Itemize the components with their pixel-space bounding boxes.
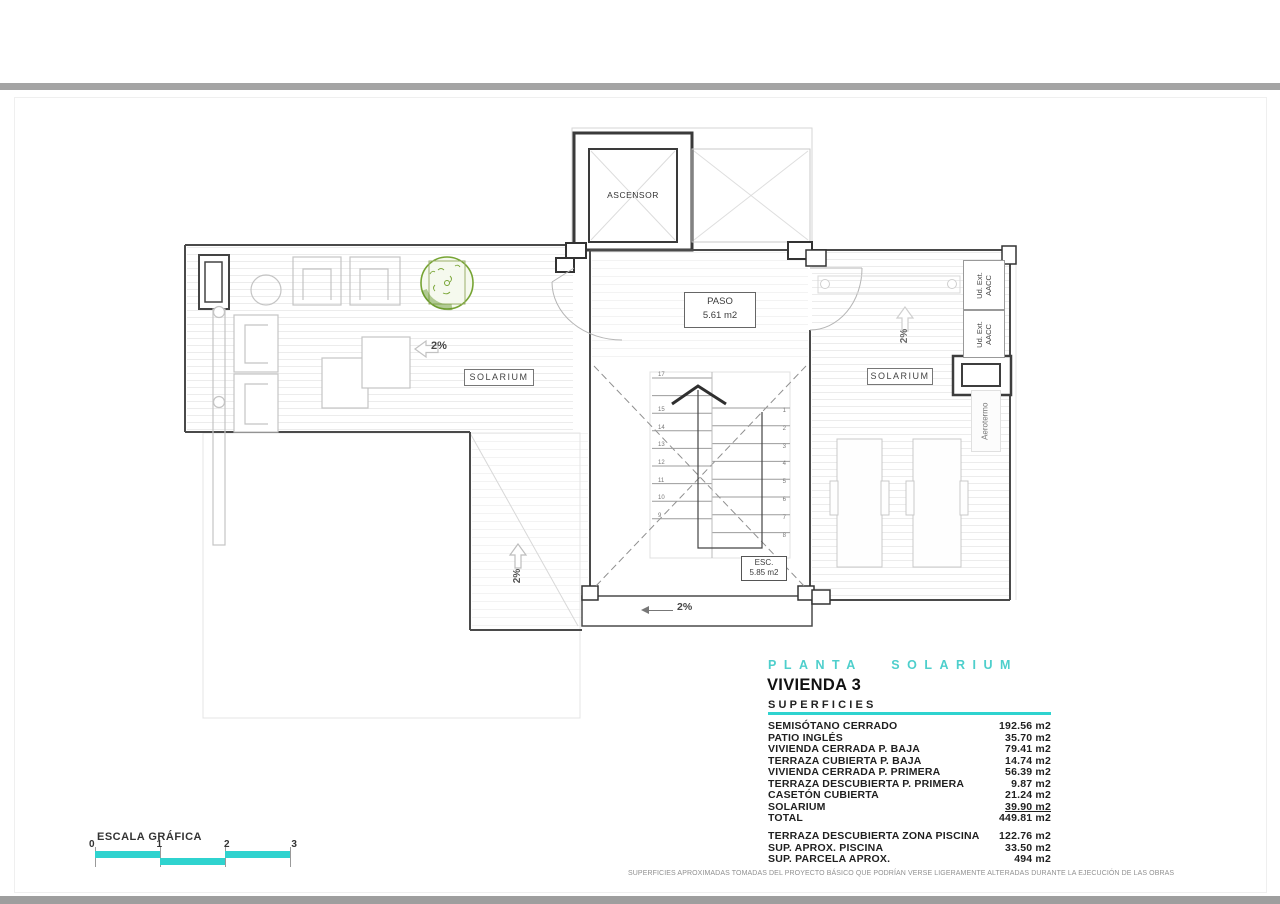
ud-ext-aacc-box-1: Ud. Ext. AACC <box>963 260 1005 310</box>
walls <box>185 245 1010 630</box>
aerotermo-box: Aerotermo <box>971 390 1001 452</box>
scale-segment <box>160 858 225 865</box>
surface-value: 79.41 m2 <box>1005 744 1051 756</box>
slope-left-label: 2% <box>431 340 447 352</box>
accent-divider <box>768 712 1051 715</box>
solarium-left-label: SOLARIUM <box>464 369 534 386</box>
ud-ext-aacc-text: Ud. Ext. AACC <box>976 321 993 348</box>
scale-segment <box>225 851 290 858</box>
surface-value: 449.81 m2 <box>999 813 1051 825</box>
paso-label: PASO 5.61 m2 <box>684 292 756 328</box>
dwelling-title: VIVIENDA 3 <box>767 676 861 695</box>
surface-label: TOTAL <box>768 813 803 825</box>
aerotermo-label: Aerotermo <box>982 402 991 439</box>
skylight <box>692 149 810 242</box>
stair-number: 15 <box>658 407 674 425</box>
plan-title: PLANTA SOLARIUM <box>768 658 1018 672</box>
floor-plan-drawing <box>0 0 1280 904</box>
stair-numbers-left: 171514131211109 <box>658 372 674 530</box>
stair-number: 3 <box>772 444 786 462</box>
stair-number: 14 <box>658 425 674 443</box>
surface-value: 494 m2 <box>1014 854 1051 866</box>
surface-label: VIVIENDA CERRADA P. BAJA <box>768 744 920 756</box>
surface-row: SEMISÓTANO CERRADO 192.56 m2 <box>768 721 1051 733</box>
elevator-label: ASCENSOR <box>589 190 677 200</box>
ud-ext-aacc-text: Ud. Ext. AACC <box>976 272 993 299</box>
scale-tick-number: 3 <box>291 839 297 850</box>
stair-number: 13 <box>658 442 674 460</box>
scale-tick-number: 0 <box>89 839 95 850</box>
scale-segment <box>95 851 160 858</box>
ud-ext-aacc-box-2: Ud. Ext. AACC <box>963 310 1005 358</box>
stair-number: 1 <box>772 408 786 426</box>
stair-number: 11 <box>658 478 674 496</box>
slope-bottom-arrow-line <box>649 610 673 612</box>
stair-number: 2 <box>772 426 786 444</box>
plan-sheet: ASCENSOR PASO 5.61 m2 ESC. 5.85 m2 SOLAR… <box>0 0 1280 904</box>
stair-numbers-right: 12345678 <box>772 408 786 550</box>
surface-label: TERRAZA DESCUBIERTA ZONA PISCINA <box>768 831 980 843</box>
surface-row: TOTAL 449.81 m2 <box>768 813 1051 825</box>
surfaces-table: SEMISÓTANO CERRADO 192.56 m2 PATIO INGLÉ… <box>768 721 1051 825</box>
esc-title: ESC. <box>742 558 786 568</box>
stair-number: 17 <box>658 372 674 390</box>
stair-number: 8 <box>772 533 786 551</box>
stair-number: 4 <box>772 461 786 479</box>
left-solarium-furniture <box>199 255 410 545</box>
stair-number: 10 <box>658 495 674 513</box>
stair-number: 12 <box>658 460 674 478</box>
esc-label: ESC. 5.85 m2 <box>741 556 787 581</box>
disclaimer-text: SUPERFICIES APROXIMADAS TOMADAS DEL PROY… <box>628 870 1174 877</box>
surface-row: TERRAZA DESCUBIERTA ZONA PISCINA 122.76 … <box>768 831 1051 843</box>
scale-numbers: 0123 <box>89 839 297 850</box>
surface-row: VIVIENDA CERRADA P. BAJA 79.41 m2 <box>768 744 1051 756</box>
surface-row: VIVIENDA CERRADA P. PRIMERA 56.39 m2 <box>768 767 1051 779</box>
esc-area: 5.85 m2 <box>742 568 786 578</box>
paso-title: PASO <box>685 295 755 309</box>
solarium-right-label: SOLARIUM <box>867 368 933 385</box>
surface-label: VIVIENDA CERRADA P. PRIMERA <box>768 767 940 779</box>
surface-value: 122.76 m2 <box>999 831 1051 843</box>
stair-number: 6 <box>772 497 786 515</box>
paso-area: 5.61 m2 <box>685 309 755 323</box>
surface-row: SUP. PARCELA APROX. 494 m2 <box>768 854 1051 866</box>
stair-number <box>658 390 674 408</box>
slope-bottom-arrow-icon <box>641 606 649 614</box>
stair-number: 5 <box>772 479 786 497</box>
surface-value: 56.39 m2 <box>1005 767 1051 779</box>
stair-number: 9 <box>658 513 674 531</box>
surface-label: SEMISÓTANO CERRADO <box>768 721 897 733</box>
scale-tick-mark <box>290 847 291 867</box>
surfaces-table-extra: TERRAZA DESCUBIERTA ZONA PISCINA 122.76 … <box>768 831 1051 866</box>
tree-icon <box>421 257 473 309</box>
stair-number: 7 <box>772 515 786 533</box>
slope-vert-right-label: 2% <box>899 321 911 351</box>
surface-value: 192.56 m2 <box>999 721 1051 733</box>
sun-loungers <box>830 439 968 567</box>
slope-bottom-label: 2% <box>677 601 692 613</box>
surfaces-heading: SUPERFICIES <box>768 699 877 711</box>
slope-vert-left-label: 2% <box>512 561 524 591</box>
surface-label: SUP. PARCELA APROX. <box>768 854 890 866</box>
